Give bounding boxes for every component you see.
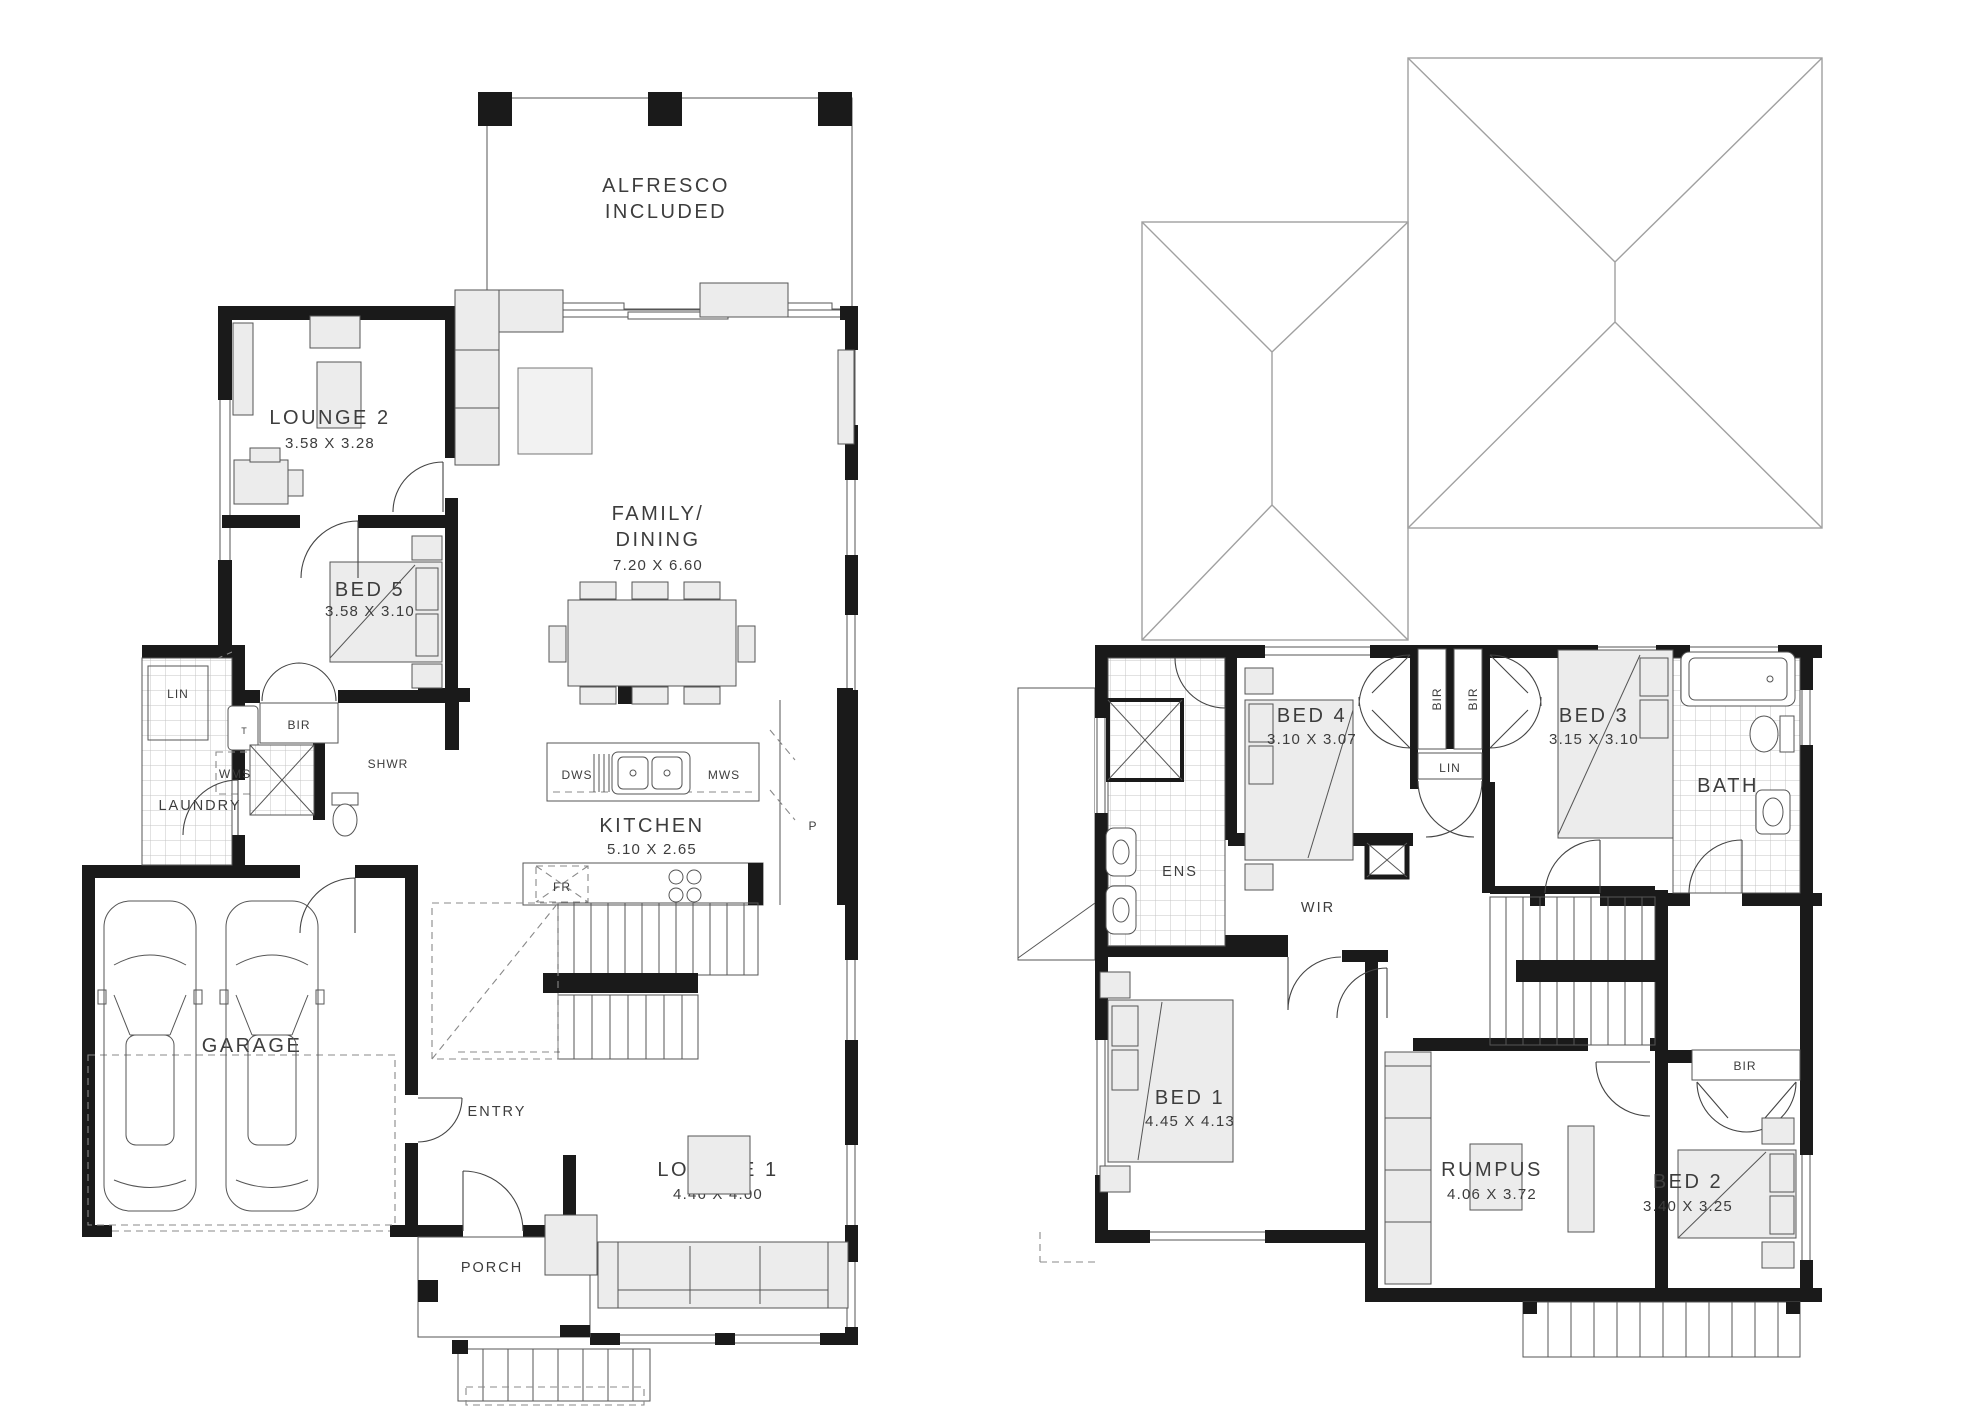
- label-family-line2: DINING: [616, 529, 701, 551]
- pillow: [1640, 658, 1668, 696]
- floor-plan-page: ALFRESCO INCLUDED: [0, 0, 1980, 1410]
- bedside-table: [412, 664, 442, 688]
- label-bir-right: BIR: [1466, 687, 1480, 710]
- label-wir: WIR: [1301, 900, 1335, 916]
- window: [218, 400, 232, 560]
- chair: [738, 626, 755, 662]
- floor-plan-canvas: ALFRESCO INCLUDED: [0, 0, 1980, 1410]
- dims-bed3: 3.15 X 3.10: [1549, 731, 1639, 748]
- label-bir-left: BIR: [1430, 687, 1444, 710]
- sofa: [455, 290, 499, 465]
- label-trough: T: [241, 726, 247, 736]
- label-bir: BIR: [287, 718, 310, 732]
- shower: [250, 745, 314, 815]
- room-bed-4: BED 4 3.10 X 3.07: [1245, 668, 1357, 890]
- void-box: [1367, 843, 1407, 877]
- toilet: [332, 793, 358, 836]
- sofa: [1385, 1066, 1431, 1284]
- window: [845, 960, 858, 1040]
- label-laundry: LAUNDRY: [158, 798, 241, 814]
- dims-kitchen: 5.10 X 2.65: [607, 841, 697, 858]
- dims-bed2: 3.40 X 3.25: [1643, 1198, 1733, 1215]
- label-bath: BATH: [1697, 775, 1759, 797]
- shelf: [233, 323, 253, 415]
- chair: [580, 687, 616, 704]
- toilet: [1750, 716, 1794, 752]
- window: [1800, 1155, 1813, 1260]
- label-bed5: BED 5: [335, 579, 405, 601]
- label-pantry: P: [808, 819, 817, 833]
- label-kitchen: KITCHEN: [599, 815, 704, 837]
- shower: [1108, 700, 1182, 780]
- window: [1265, 645, 1370, 658]
- label-lin: LIN: [167, 687, 189, 701]
- window: [845, 1145, 858, 1225]
- basin: [1106, 886, 1136, 934]
- room-ens: ENS: [1106, 658, 1225, 946]
- bedside-table: [1762, 1242, 1794, 1268]
- stair-rail: [1516, 960, 1658, 982]
- label-alfresco-line1: ALFRESCO: [602, 175, 730, 197]
- kitchen-bench: FR: [523, 863, 763, 905]
- label-lounge2: LOUNGE 2: [269, 407, 390, 429]
- chair: [684, 687, 720, 704]
- pillow: [1640, 700, 1668, 738]
- bedside-table: [1100, 972, 1130, 998]
- label-rumpus: RUMPUS: [1441, 1159, 1543, 1181]
- label-bir-bed2: BIR: [1733, 1059, 1756, 1073]
- label-mws: MWS: [708, 768, 740, 782]
- tv-unit: [1568, 1126, 1594, 1232]
- bedside-table: [1762, 1118, 1794, 1144]
- tv-unit: [838, 350, 854, 444]
- stair-rail: [543, 973, 698, 993]
- sofa: [598, 1242, 848, 1308]
- label-bed3: BED 3: [1559, 705, 1629, 727]
- sofa: [310, 316, 360, 348]
- label-alfresco-line2: INCLUDED: [605, 201, 727, 223]
- label-garage: GARAGE: [202, 1035, 303, 1057]
- pillow: [1770, 1196, 1794, 1234]
- dims-lounge2: 3.58 X 3.28: [285, 435, 375, 452]
- tv-bench: [700, 283, 788, 317]
- basin: [1106, 828, 1136, 876]
- label-lin-upper: LIN: [1439, 761, 1461, 775]
- desk: [234, 460, 288, 504]
- bedside-table: [1245, 864, 1273, 890]
- chair: [684, 582, 720, 599]
- window: [1095, 1040, 1108, 1175]
- dims-bed4: 3.10 X 3.07: [1267, 731, 1357, 748]
- room-bath: BATH: [1673, 652, 1800, 893]
- dining-table: [568, 600, 736, 686]
- chair: [632, 687, 668, 704]
- dims-bed1: 4.45 X 4.13: [1145, 1113, 1235, 1130]
- alfresco-pillar: [648, 92, 682, 126]
- label-family-line1: FAMILY/: [612, 503, 705, 525]
- label-wms: WMS: [219, 767, 251, 781]
- alfresco-pillar: [478, 92, 512, 126]
- pillow: [1770, 1154, 1794, 1192]
- ottoman: [688, 1136, 750, 1194]
- window: [845, 480, 858, 555]
- window: [1150, 1230, 1265, 1243]
- label-porch: PORCH: [461, 1260, 523, 1276]
- label-entry: ENTRY: [468, 1104, 527, 1120]
- sofa: [499, 290, 563, 332]
- rug: [518, 368, 592, 454]
- window: [845, 615, 858, 690]
- basin: [1756, 790, 1790, 834]
- sink: [612, 752, 690, 794]
- bedside-table: [412, 536, 442, 560]
- pillow: [1112, 1050, 1138, 1090]
- chair: [549, 626, 566, 662]
- label-bed2: BED 2: [1653, 1171, 1723, 1193]
- label-shwr: SHWR: [368, 757, 409, 771]
- window: [1800, 690, 1813, 745]
- pillow: [416, 568, 438, 610]
- armchair: [545, 1215, 597, 1275]
- label-bed4: BED 4: [1277, 705, 1347, 727]
- kitchen-island: DWS MWS: [547, 743, 759, 801]
- label-fr: FR: [553, 880, 571, 894]
- label-dws: DWS: [562, 768, 593, 782]
- pillow: [1249, 746, 1273, 784]
- chair: [632, 582, 668, 599]
- alfresco-pillar: [818, 92, 852, 126]
- bedside-table: [1100, 1166, 1130, 1192]
- room-bed-1: BED 1 4.45 X 4.13: [1100, 972, 1235, 1192]
- pillow: [1112, 1006, 1138, 1046]
- window: [735, 1333, 820, 1345]
- dims-family: 7.20 X 6.60: [613, 557, 703, 574]
- label-bed1: BED 1: [1155, 1087, 1225, 1109]
- desk-return: [288, 470, 303, 496]
- bedside-table: [1245, 668, 1273, 694]
- label-ens: ENS: [1162, 864, 1198, 880]
- dims-bed5: 3.58 X 3.10: [325, 603, 415, 620]
- pillow: [416, 614, 438, 656]
- chair: [250, 448, 280, 462]
- dims-rumpus: 4.06 X 3.72: [1447, 1186, 1537, 1203]
- window: [620, 1333, 715, 1345]
- chair: [580, 582, 616, 599]
